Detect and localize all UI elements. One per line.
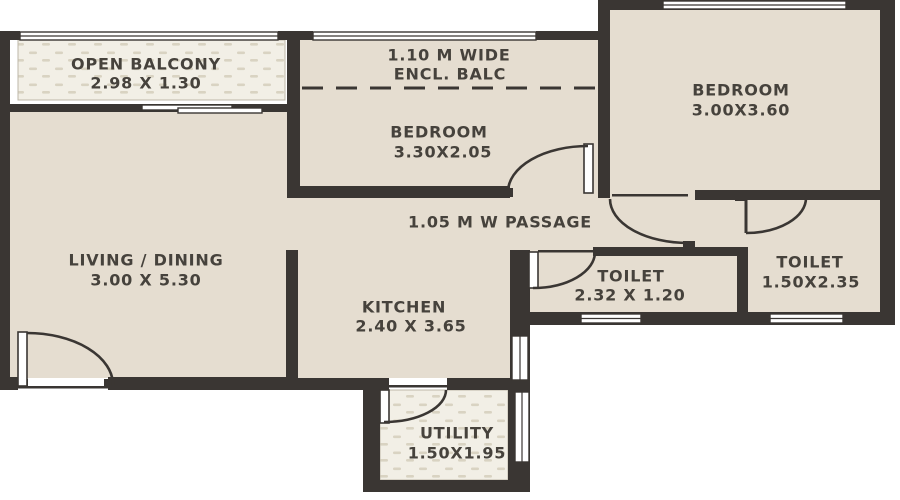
room-floor-living-dining <box>10 104 287 378</box>
room-dims-utility: 1.50X1.95 <box>408 444 507 463</box>
wall-balcony-band-cap-left <box>10 31 20 40</box>
room-label-passage: 1.05 M W PASSAGE <box>408 213 592 232</box>
room-label-utility: UTILITY <box>420 424 494 443</box>
wall-living-kitchen-divider <box>286 250 298 378</box>
room-dims-toilet-2: 1.50X2.35 <box>762 273 861 292</box>
room-dims-open-balcony: 2.98 X 1.30 <box>90 74 201 93</box>
room-label-encl-balcony-line1: 1.10 M WIDE <box>387 46 510 65</box>
entrance-threshold <box>18 386 113 389</box>
bedroom1-door-leaf <box>584 144 593 193</box>
room-label-bedroom-2: BEDROOM <box>692 81 789 100</box>
room-label-encl-balcony-line2: ENCL. BALC <box>394 65 506 84</box>
balcony-sliding-panel-2 <box>178 108 262 113</box>
bedroom2-threshold <box>612 194 688 197</box>
wall-toilet2-left <box>737 247 748 317</box>
room-dims-kitchen: 2.40 X 3.65 <box>355 317 466 336</box>
room-label-toilet-1: TOILET <box>597 267 664 286</box>
room-label-toilet-2: TOILET <box>776 253 843 272</box>
wall-left <box>0 31 10 390</box>
wall-right <box>880 0 895 322</box>
toilet1-threshold <box>538 250 594 253</box>
wall-toilet1-top <box>593 247 748 256</box>
room-label-living-dining: LIVING / DINING <box>68 251 223 270</box>
room-label-kitchen: KITCHEN <box>362 298 446 317</box>
wall-bedroom2-bottom <box>695 190 895 200</box>
floor-plan: OPEN BALCONY 2.98 X 1.30 1.10 M WIDE ENC… <box>0 0 900 500</box>
toilet1-door-leaf <box>529 252 538 288</box>
room-label-open-balcony: OPEN BALCONY <box>71 55 221 74</box>
entrance-door-leaf <box>18 332 27 386</box>
wall-living-bottom <box>108 377 298 390</box>
room-label-bedroom-1: BEDROOM <box>390 123 487 142</box>
room-dims-bedroom-1: 3.30X2.05 <box>394 143 493 162</box>
wall-living-bedroom1-divider <box>287 40 300 198</box>
wall-encl-balc-top-right <box>536 31 600 40</box>
room-dims-bedroom-2: 3.00X3.60 <box>692 101 791 120</box>
wall-utility-bottom <box>363 480 530 492</box>
wall-utility-left <box>363 380 380 492</box>
wall-bedroom1-bedroom2-divider <box>598 10 610 198</box>
utility-door-leaf <box>380 390 389 423</box>
wall-bedroom1-bottom <box>300 186 510 198</box>
utility-threshold <box>389 385 447 388</box>
bedroom1-door-stop <box>500 188 513 197</box>
room-dims-living-dining: 3.00 X 5.30 <box>90 271 201 290</box>
wall-balcony-band-pier <box>278 31 313 40</box>
room-dims-toilet-1: 2.32 X 1.20 <box>574 286 685 305</box>
